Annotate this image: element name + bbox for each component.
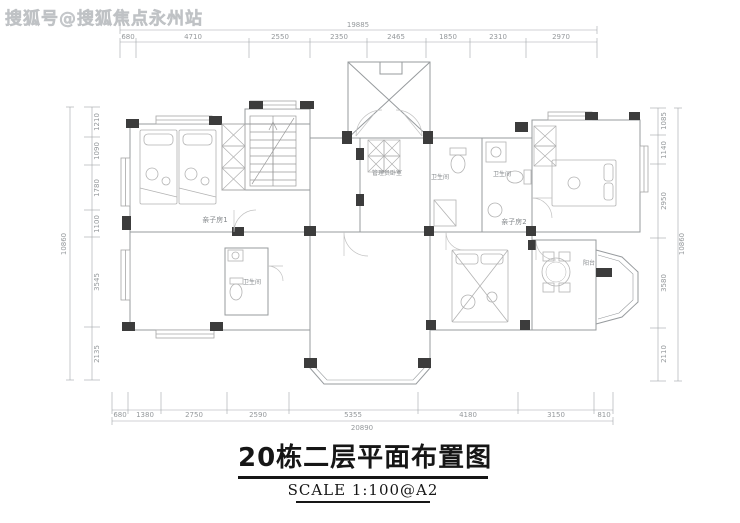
dim-total: 10860 [678, 233, 686, 255]
drawing-title: 20栋二层平面布置图 [238, 442, 488, 475]
dim-label: 680 [121, 33, 134, 41]
dim-label: 1085 [660, 112, 668, 130]
dim-label: 1780 [93, 179, 101, 197]
staircase [250, 116, 296, 186]
dim-label: 810 [597, 411, 610, 419]
dim-label: 2590 [249, 411, 267, 419]
dim-total: 20890 [351, 424, 373, 432]
dim-label: 3150 [547, 411, 565, 419]
dimension-annotations: 6804710255023502465185023102970198856801… [60, 21, 686, 432]
dim-label: 2970 [552, 33, 570, 41]
room-labels: 亲子房1管理员卧室卫生间卫生间亲子房2卫生间阳台 [202, 169, 595, 286]
dim-label: 1090 [93, 142, 101, 160]
dim-label: 3545 [93, 273, 101, 291]
dim-total: 19885 [347, 21, 369, 29]
furniture [140, 130, 616, 322]
windows [121, 101, 648, 338]
room-label: 亲子房2 [501, 217, 526, 226]
dim-total: 10860 [60, 233, 68, 255]
scale-label: SCALE 1:100@A2 [238, 481, 488, 499]
dim-label: 5355 [344, 411, 362, 419]
dim-label: 1140 [660, 141, 668, 159]
title-underline [238, 476, 488, 479]
dim-label: 2310 [489, 33, 507, 41]
dim-label: 2550 [271, 33, 289, 41]
floorplan-page: 搜狐号@搜狐焦点永州站 [0, 0, 740, 523]
dim-label: 2110 [660, 345, 668, 363]
dim-label: 1210 [93, 113, 101, 131]
dim-label: 4180 [459, 411, 477, 419]
room-label: 卫生间 [493, 170, 511, 178]
room-label: 卫生间 [243, 278, 261, 286]
dim-label: 2950 [660, 192, 668, 210]
dim-chain-bottom: 68013802750259053554180315081020890 [112, 392, 613, 432]
dim-chain-top: 680471025502350246518502310297019885 [120, 21, 597, 58]
dim-chain-left: 12101090178011003545213510860 [60, 107, 101, 380]
wall-piers [122, 101, 640, 368]
dim-label: 2350 [330, 33, 348, 41]
dim-label: 4710 [184, 33, 202, 41]
dim-chain-right: 1085114029503580211010860 [650, 108, 686, 381]
dim-label: 2750 [185, 411, 203, 419]
dim-label: 1380 [136, 411, 154, 419]
room-label: 卫生间 [431, 173, 449, 181]
room-label: 阳台 [583, 259, 595, 267]
dim-label: 2135 [93, 345, 101, 363]
room-label: 亲子房1 [202, 215, 227, 224]
title-block: 20栋二层平面布置图 SCALE 1:100@A2 [238, 442, 488, 503]
dim-label: 1850 [439, 33, 457, 41]
dim-label: 1100 [93, 215, 101, 233]
dim-label: 3580 [660, 274, 668, 292]
dim-label: 680 [113, 411, 126, 419]
room-label: 管理员卧室 [372, 169, 402, 177]
dim-label: 2465 [387, 33, 405, 41]
scale-underline [296, 501, 430, 503]
